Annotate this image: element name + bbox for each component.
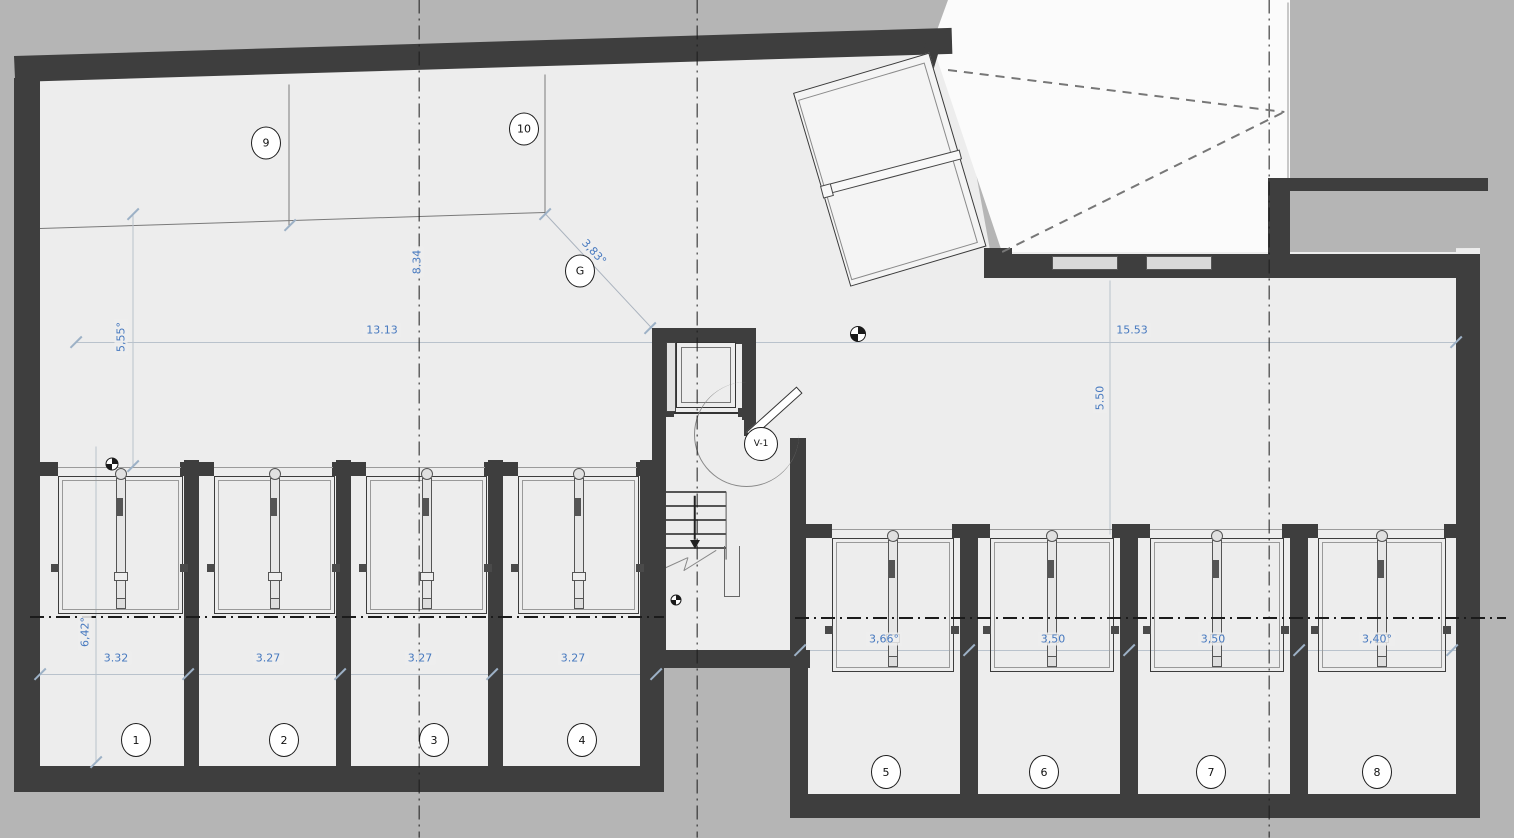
plan-line xyxy=(990,529,1112,530)
garage-door-clip xyxy=(825,626,833,634)
garage-door-clip xyxy=(207,564,215,572)
garage-door-knob xyxy=(887,530,899,542)
garage-door-foot xyxy=(1212,656,1222,667)
garage-door-knob xyxy=(573,468,585,480)
wall xyxy=(1268,183,1290,259)
plan-line xyxy=(518,467,637,468)
garage-door-rail-segment xyxy=(575,498,581,516)
wall xyxy=(184,460,199,766)
wall xyxy=(14,766,664,792)
stair-arrowhead xyxy=(690,540,700,549)
dimension-label: 5.50 xyxy=(1094,383,1107,414)
wall xyxy=(1456,260,1480,818)
plan-line xyxy=(366,467,485,468)
dimension-label: 3,50 xyxy=(1198,633,1229,646)
centerline xyxy=(418,0,419,838)
plan-line xyxy=(76,342,1458,343)
garage-door-knob xyxy=(1376,530,1388,542)
garage-door-clip xyxy=(484,564,492,572)
garage-door-rail-segment xyxy=(1378,560,1384,578)
dimension-label: 13.13 xyxy=(363,324,401,337)
floor-plan-canvas: 121,60 Elevador -8 -9 -10 -11 -12 -13 -1… xyxy=(0,0,1514,838)
garage-door-clip xyxy=(332,564,340,572)
garage-door-rail xyxy=(1047,540,1057,666)
dimension-label: 3.32 xyxy=(101,652,132,665)
wall xyxy=(1120,524,1138,794)
garage-door-foot xyxy=(888,656,898,667)
garage-door-clip xyxy=(636,564,644,572)
zone-bubble-10: 10 xyxy=(509,113,539,146)
plan-line xyxy=(832,529,952,530)
dimension-label: 15.53 xyxy=(1113,324,1151,337)
dimension-label: 3,40° xyxy=(1359,633,1395,646)
zone-bubble-2: 2 xyxy=(269,723,299,757)
wall xyxy=(14,78,40,792)
level-benchmark-icon xyxy=(106,458,119,471)
stair-handrail xyxy=(724,546,740,597)
wall xyxy=(1444,524,1458,538)
zone-bubble-3: 3 xyxy=(419,723,449,757)
garage-door-foot xyxy=(422,598,432,609)
wall-grille xyxy=(1052,256,1118,270)
garage-door-rail-segment xyxy=(1048,560,1054,578)
wall xyxy=(484,462,518,476)
wall xyxy=(984,248,1012,278)
garage-door-clip xyxy=(1311,626,1319,634)
garage-door-rail-segment xyxy=(1213,560,1219,578)
garage-door-clip xyxy=(359,564,367,572)
garage-door-rail-segment xyxy=(271,498,277,516)
wall xyxy=(790,650,808,818)
dimension-label: 3,66° xyxy=(866,633,902,646)
dimension-label: 3.27 xyxy=(253,652,284,665)
dimension-label: 3.27 xyxy=(405,652,436,665)
wall xyxy=(652,328,666,420)
garage-door-rail xyxy=(1212,540,1222,666)
plan-line xyxy=(1150,529,1282,530)
garage-door-rail-segment xyxy=(117,498,123,516)
wall xyxy=(652,420,666,668)
garage-door-knob xyxy=(269,468,281,480)
garage-door-knob xyxy=(421,468,433,480)
dimension-label: 5,55° xyxy=(115,319,128,355)
plan-line xyxy=(58,467,181,468)
wall xyxy=(332,462,366,476)
plan-line xyxy=(133,214,134,466)
wall xyxy=(1282,524,1318,538)
garage-door-clip xyxy=(951,626,959,634)
garage-door-knob xyxy=(115,468,127,480)
garage-door-clip xyxy=(1443,626,1451,634)
garage-door-clip xyxy=(51,564,59,572)
level-benchmark-icon xyxy=(850,326,866,342)
garage-door-clip xyxy=(1281,626,1289,634)
centerline xyxy=(696,0,697,838)
garage-door-foot xyxy=(270,598,280,609)
zone-bubble-8: 8 xyxy=(1362,755,1392,789)
wall xyxy=(180,462,214,476)
garage-door-rail xyxy=(888,540,898,666)
garage-door-foot xyxy=(1377,656,1387,667)
dimension-label: 6,42° xyxy=(79,614,92,650)
zone-bubble-4: 4 xyxy=(567,723,597,757)
wall xyxy=(1268,178,1488,191)
elevator-rail xyxy=(666,342,676,412)
centerline xyxy=(1268,0,1269,838)
garage-door-foot xyxy=(116,598,126,609)
garage-door-rail-segment xyxy=(423,498,429,516)
garage-door-collar xyxy=(268,572,282,581)
zone-bubble-6: 6 xyxy=(1029,755,1059,789)
garage-door-collar xyxy=(420,572,434,581)
zone-bubble-g: G xyxy=(565,255,595,288)
garage-door-knob xyxy=(1211,530,1223,542)
dimension-label: 3,50 xyxy=(1038,633,1069,646)
dimension-label: 8.34 xyxy=(411,247,424,278)
garage-door-clip xyxy=(1143,626,1151,634)
wall-grille xyxy=(1146,256,1212,270)
garage-door-clip xyxy=(511,564,519,572)
zone-bubble-9: 9 xyxy=(251,127,281,160)
level-benchmark-icon xyxy=(671,595,682,606)
plan-line xyxy=(545,74,546,213)
wall xyxy=(40,462,58,476)
plan-line xyxy=(1318,529,1444,530)
garage-door-rail xyxy=(1377,540,1387,666)
garage-door-clip xyxy=(1111,626,1119,634)
wall xyxy=(790,794,1480,818)
wall xyxy=(652,650,810,668)
garage-door-clip xyxy=(180,564,188,572)
garage-door-foot xyxy=(1047,656,1057,667)
zone-bubble-7: 7 xyxy=(1196,755,1226,789)
garage-door-clip xyxy=(983,626,991,634)
wall xyxy=(952,524,990,538)
plan-line xyxy=(1288,2,1289,184)
garage-door-collar xyxy=(572,572,586,581)
plan-line xyxy=(214,467,333,468)
wall xyxy=(336,460,351,766)
zone-bubble-1: 1 xyxy=(121,723,151,757)
garage-door-collar xyxy=(114,572,128,581)
garage-door-foot xyxy=(574,598,584,609)
wall xyxy=(1290,524,1308,794)
centerline xyxy=(30,616,664,617)
zone-bubble-v-1: V-1 xyxy=(744,427,778,461)
wall xyxy=(1112,524,1150,538)
garage-door-knob xyxy=(1046,530,1058,542)
centerline xyxy=(795,617,1506,618)
plan-line xyxy=(289,84,290,226)
wall xyxy=(960,524,978,794)
garage-door-rail-segment xyxy=(889,560,895,578)
dimension-label: 3.27 xyxy=(558,652,589,665)
zone-bubble-5: 5 xyxy=(871,755,901,789)
plan-line xyxy=(1110,280,1111,534)
wall xyxy=(488,460,503,766)
wall xyxy=(790,524,832,538)
